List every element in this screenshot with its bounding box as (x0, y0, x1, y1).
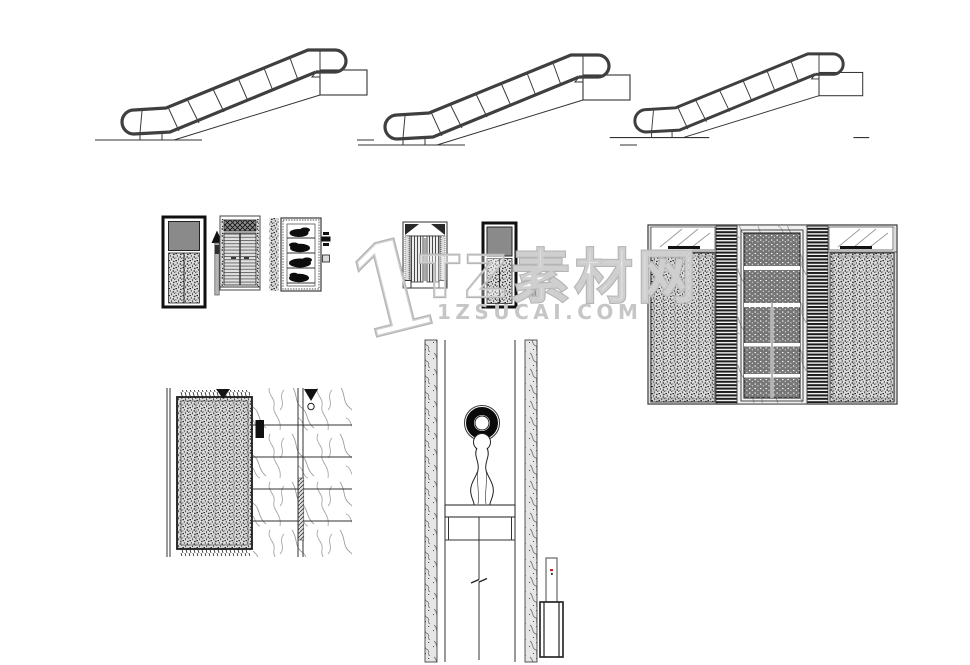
glass-transom-right (829, 227, 893, 250)
cad-sheet: 1 TZ素材网 1ZSUCAI.COM (0, 0, 970, 665)
door-transom-lattice (224, 220, 256, 231)
elevator-call-panel-left (163, 217, 205, 307)
floor-tile-grid (253, 388, 352, 557)
console-table-plan (445, 505, 515, 540)
striped-column-left (716, 226, 737, 404)
marble-wall-left (425, 340, 437, 662)
decorative-vase (471, 434, 494, 507)
panel-display-screen (169, 222, 200, 251)
red-marker (550, 569, 553, 571)
striped-column-right (807, 226, 828, 404)
legend-glyphs (322, 232, 331, 262)
marble-wall-right (525, 340, 537, 662)
elevator-door-plan (167, 388, 352, 557)
escalator-side-elevation-2 (358, 55, 637, 145)
center-elevator-door (737, 225, 807, 404)
door-leaf-right (240, 233, 256, 285)
block-marker (256, 420, 265, 438)
plant-display-cabinet (270, 218, 322, 291)
corridor-plan-with-vase (425, 340, 537, 662)
elevator-door-louver (220, 216, 260, 290)
escalator-side-elevation-3 (610, 54, 869, 138)
cad-drawing: 1 TZ素材网 1ZSUCAI.COM (0, 0, 970, 665)
wall-hatch-strip (298, 478, 304, 540)
door-leaf-left (224, 233, 240, 285)
escalator-side-elevation-1 (95, 50, 374, 140)
granite-wall-right (830, 253, 894, 402)
pedestal-detail (540, 558, 563, 657)
watermark-domain: 1ZSUCAI.COM (437, 300, 642, 324)
